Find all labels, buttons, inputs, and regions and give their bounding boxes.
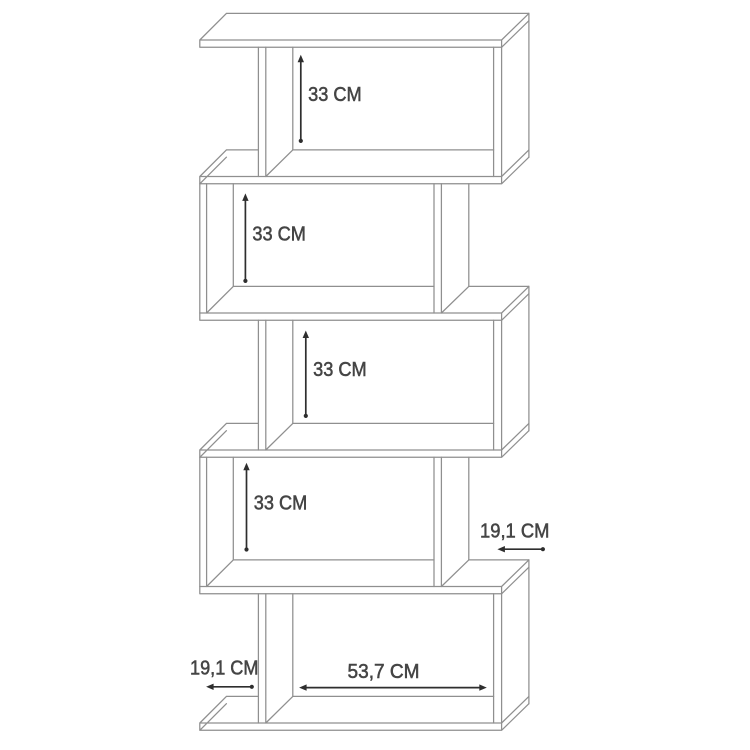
svg-text:33 CM: 33 CM (254, 492, 307, 515)
svg-text:19,1 CM: 19,1 CM (190, 657, 259, 680)
svg-text:19,1 CM: 19,1 CM (480, 520, 550, 543)
svg-text:33 CM: 33 CM (313, 358, 367, 381)
svg-text:33 CM: 33 CM (308, 83, 362, 106)
svg-text:53,7 CM: 53,7 CM (348, 660, 420, 683)
svg-text:33 CM: 33 CM (252, 222, 306, 245)
